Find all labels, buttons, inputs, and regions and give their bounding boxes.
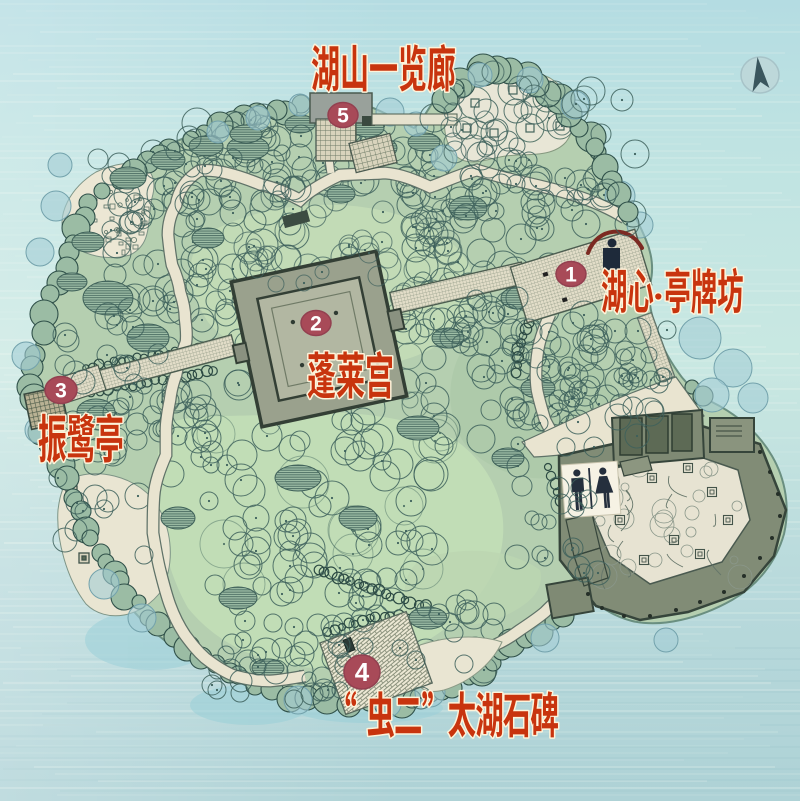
- svg-text:4: 4: [355, 657, 370, 687]
- svg-text:3: 3: [55, 379, 67, 402]
- svg-text:1: 1: [565, 263, 577, 286]
- svg-text:5: 5: [337, 104, 349, 127]
- svg-text:2: 2: [310, 312, 322, 335]
